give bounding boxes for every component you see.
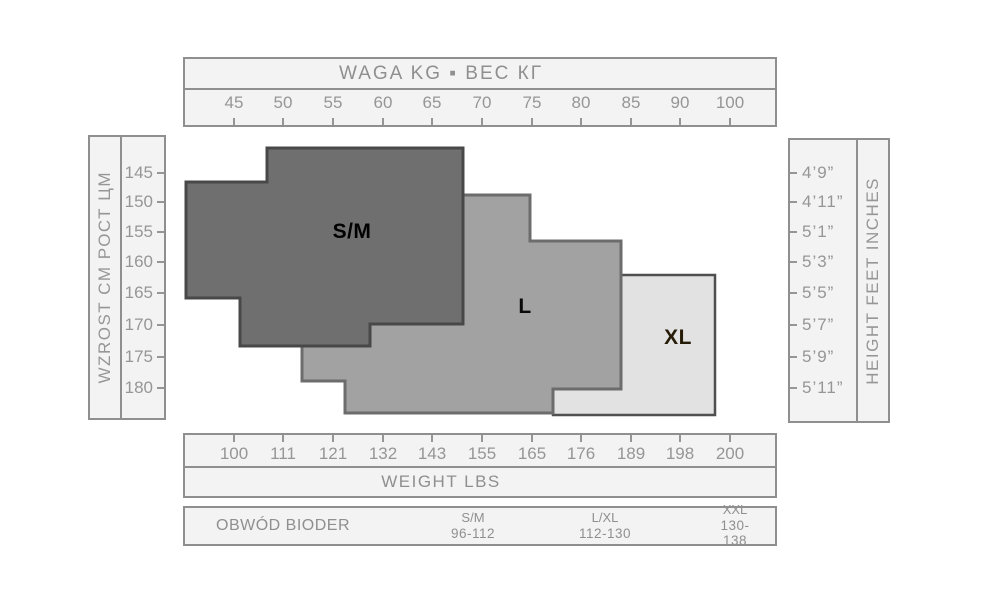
tick-label: 75 <box>523 93 542 113</box>
tick-mark <box>233 435 235 442</box>
tick-mark <box>630 435 632 442</box>
tick-mark <box>790 172 797 174</box>
tick-mark <box>531 118 533 125</box>
height-feet-axis-label: HEIGHT FEET INCHES <box>863 177 883 385</box>
tick-label: 155 <box>468 444 496 464</box>
hip-size-lxl-range: 112-130 <box>579 526 631 542</box>
tick-mark <box>157 356 164 358</box>
hip-size-sm-range: 96-112 <box>451 526 495 542</box>
tick-label: 145 <box>125 163 153 183</box>
tick-mark <box>233 118 235 125</box>
height-cm-axis: WZROST CM РОСТ ЦМ 1451501551601651701751… <box>88 135 166 420</box>
tick-mark <box>531 435 533 442</box>
hip-size-lxl-name: L/XL <box>579 511 631 526</box>
tick-label: 5’3” <box>802 252 834 272</box>
tick-label: 200 <box>716 444 744 464</box>
tick-label: 50 <box>274 93 293 113</box>
tick-label: 143 <box>418 444 446 464</box>
hip-size-col-xxl: XXL 130-138 <box>715 503 755 549</box>
weight-kg-axis: WAGA KG ▪ ВЕС КГ 45505560657075808590100 <box>183 57 777 127</box>
tick-label: 150 <box>125 192 153 212</box>
tick-mark <box>157 172 164 174</box>
tick-mark <box>630 118 632 125</box>
tick-mark <box>282 118 284 125</box>
weight-kg-axis-title-row: WAGA KG ▪ ВЕС КГ <box>185 59 775 90</box>
tick-label: 189 <box>617 444 645 464</box>
tick-label: 5’11” <box>802 378 844 398</box>
tick-label: 100 <box>716 93 744 113</box>
tick-label: 5’7” <box>802 315 834 335</box>
tick-label: 121 <box>319 444 347 464</box>
height-feet-axis: 4’9”4’11”5’1”5’3”5’5”5’7”5’9”5’11” HEIGH… <box>788 138 890 423</box>
tick-mark <box>382 118 384 125</box>
tick-mark <box>580 435 582 442</box>
tick-mark <box>157 231 164 233</box>
tick-mark <box>729 435 731 442</box>
tick-label: 5’1” <box>802 222 834 242</box>
tick-label: 165 <box>125 283 153 303</box>
tick-mark <box>790 356 797 358</box>
weight-kg-axis-title: WAGA KG ▪ ВЕС КГ <box>339 63 543 85</box>
tick-mark <box>481 435 483 442</box>
tick-mark <box>382 435 384 442</box>
tick-label: 4’11” <box>802 192 844 212</box>
tick-label: 155 <box>125 222 153 242</box>
tick-label: 100 <box>220 444 248 464</box>
tick-label: 5’5” <box>802 283 834 303</box>
tick-mark <box>790 324 797 326</box>
hip-size-xxl-range: 130-138 <box>715 518 755 549</box>
region-label-sm: S/M <box>333 220 372 244</box>
tick-mark <box>790 261 797 263</box>
height-cm-axis-ticks: 145150155160165170175180 <box>122 137 164 418</box>
tick-label: 80 <box>572 93 591 113</box>
tick-mark <box>790 292 797 294</box>
tick-mark <box>679 118 681 125</box>
height-cm-axis-label-col: WZROST CM РОСТ ЦМ <box>90 137 122 418</box>
tick-mark <box>481 118 483 125</box>
hip-row-label: OBWÓD BIODER <box>216 517 350 535</box>
size-region-sm <box>186 148 463 346</box>
hip-size-sm-name: S/M <box>451 511 495 526</box>
tick-mark <box>679 435 681 442</box>
tick-label: 165 <box>518 444 546 464</box>
tick-mark <box>157 292 164 294</box>
size-chart-canvas: WAGA KG ▪ ВЕС КГ 45505560657075808590100… <box>0 0 1000 594</box>
hip-size-table: OBWÓD BIODER S/M 96-112 L/XL 112-130 XXL… <box>183 506 777 546</box>
tick-label: 5’9” <box>802 347 834 367</box>
tick-label: 70 <box>473 93 492 113</box>
height-feet-axis-ticks: 4’9”4’11”5’1”5’3”5’5”5’7”5’9”5’11” <box>790 140 856 421</box>
tick-label: 170 <box>125 315 153 335</box>
tick-mark <box>157 201 164 203</box>
tick-mark <box>431 435 433 442</box>
weight-lbs-axis: 100111121132143155165176189198200 WEIGHT… <box>183 433 777 498</box>
tick-label: 176 <box>567 444 595 464</box>
height-feet-axis-label-col: HEIGHT FEET INCHES <box>856 140 888 421</box>
tick-label: 60 <box>374 93 393 113</box>
tick-mark <box>157 324 164 326</box>
tick-label: 180 <box>125 378 153 398</box>
region-label-l: L <box>518 295 531 319</box>
tick-mark <box>790 201 797 203</box>
hip-size-xxl-name: XXL <box>715 503 755 518</box>
hip-size-col-sm: S/M 96-112 <box>451 511 495 541</box>
tick-label: 65 <box>423 93 442 113</box>
tick-mark <box>729 118 731 125</box>
tick-mark <box>157 387 164 389</box>
hip-size-col-lxl: L/XL 112-130 <box>579 511 631 541</box>
tick-label: 160 <box>125 252 153 272</box>
tick-mark <box>580 118 582 125</box>
region-label-xl: XL <box>664 326 692 350</box>
tick-label: 85 <box>622 93 641 113</box>
weight-lbs-axis-title-row: WEIGHT LBS <box>185 468 775 496</box>
weight-kg-axis-ticks: 45505560657075808590100 <box>185 90 775 125</box>
tick-label: 4’9” <box>802 163 834 183</box>
tick-mark <box>790 387 797 389</box>
weight-lbs-axis-ticks: 100111121132143155165176189198200 <box>185 435 775 468</box>
tick-mark <box>157 261 164 263</box>
tick-label: 111 <box>270 444 296 464</box>
tick-mark <box>790 231 797 233</box>
tick-label: 198 <box>666 444 694 464</box>
tick-mark <box>332 435 334 442</box>
tick-label: 175 <box>125 347 153 367</box>
tick-label: 55 <box>324 93 343 113</box>
tick-label: 90 <box>671 93 690 113</box>
tick-label: 132 <box>369 444 397 464</box>
height-cm-axis-label: WZROST CM РОСТ ЦМ <box>95 171 115 383</box>
tick-mark <box>431 118 433 125</box>
tick-mark <box>332 118 334 125</box>
tick-mark <box>282 435 284 442</box>
weight-lbs-axis-title: WEIGHT LBS <box>381 472 501 492</box>
tick-label: 45 <box>225 93 244 113</box>
